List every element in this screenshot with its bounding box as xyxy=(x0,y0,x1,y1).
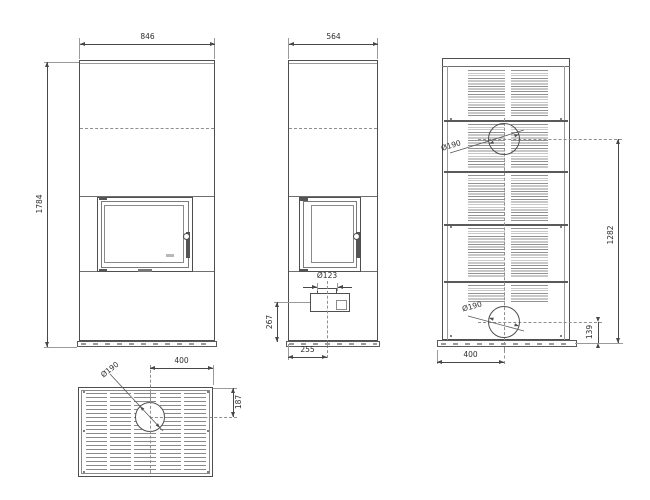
dim-arrow xyxy=(231,412,235,417)
dim-arrow xyxy=(275,337,279,342)
dim-line-front-width xyxy=(80,44,215,45)
dim-inlet-height-label: 267 xyxy=(266,311,274,333)
top-vent-slat-column xyxy=(86,393,107,471)
dim-arrow xyxy=(312,285,317,289)
screw-dot xyxy=(450,118,452,120)
vent-slat-column xyxy=(511,228,548,278)
brand-mark xyxy=(166,254,174,257)
dim-arrow xyxy=(338,285,343,289)
rear-panel-divider xyxy=(444,224,568,226)
screw-dot xyxy=(450,226,452,228)
vent-slat-column xyxy=(511,175,548,221)
front-top-inner-line xyxy=(80,63,214,64)
dim-arrow xyxy=(289,42,294,46)
rear-side-rail xyxy=(447,66,448,340)
dim-extension-line xyxy=(317,283,318,291)
dim-flue-diameter-label: Ø123 xyxy=(310,272,344,280)
dim-arrow xyxy=(80,42,85,46)
rear-body-outline xyxy=(442,58,570,340)
rear-side-rail xyxy=(564,66,565,340)
top-vent-slat-column xyxy=(110,393,131,471)
screw-dot xyxy=(450,335,452,337)
dim-arrow xyxy=(596,317,600,322)
vent-slat-column xyxy=(511,285,548,303)
side-connection-subbox xyxy=(336,300,347,310)
dim-arrow xyxy=(616,338,620,343)
dim-arrow xyxy=(208,366,213,370)
dim-arrow xyxy=(437,360,442,364)
dim-arrow xyxy=(150,366,155,370)
dim-extension-line xyxy=(213,365,214,385)
dim-arrow xyxy=(210,42,215,46)
screw-dot xyxy=(83,430,85,432)
dim-line-inlet-height xyxy=(277,302,278,342)
dim-rear-outlet-offset-label: 400 xyxy=(437,351,504,359)
side-hinge-clip-bottom xyxy=(300,269,308,272)
screw-dot xyxy=(560,335,562,337)
dim-line-upper-outlet-height xyxy=(618,139,619,343)
rear-panel-divider xyxy=(444,171,568,173)
dim-extension-line xyxy=(504,350,505,364)
rear-panel-divider xyxy=(444,120,568,122)
dim-extension-line xyxy=(44,347,77,348)
side-panel-joint-dashed xyxy=(289,128,377,129)
top-vent-slat-column xyxy=(160,393,181,471)
vent-slat-column xyxy=(511,70,548,117)
rear-lower-outlet-circle xyxy=(488,306,520,338)
rear-upper-outlet-circle xyxy=(488,123,520,155)
dim-line-front-height xyxy=(47,62,48,347)
front-base-plinth xyxy=(77,341,217,347)
top-center-line xyxy=(150,391,151,473)
dim-line-side-depth xyxy=(289,44,378,45)
dim-side-depth-label: 564 xyxy=(289,33,378,41)
dim-inlet-offset-label: 255 xyxy=(288,346,327,354)
rear-top-bar-line xyxy=(442,66,570,67)
screw-dot xyxy=(207,430,209,432)
side-top-inner-line xyxy=(289,63,377,64)
side-door-glass xyxy=(311,205,354,263)
vent-slat-column xyxy=(468,175,505,221)
dim-arrow xyxy=(596,343,600,348)
screw-dot xyxy=(560,226,562,228)
dim-arrow xyxy=(275,302,279,307)
dim-line-top-outlet-offset xyxy=(150,368,213,369)
screw-dot xyxy=(560,118,562,120)
vent-slat-column xyxy=(468,228,505,278)
screw-dot xyxy=(83,391,85,393)
front-hinge-clip-top xyxy=(99,197,107,200)
screw-dot xyxy=(207,391,209,393)
top-outlet-axis-up xyxy=(150,365,151,402)
dim-top-outlet-offset-label: 400 xyxy=(150,357,213,365)
dim-arrow xyxy=(45,62,49,67)
dim-lower-outlet-height-label: 139 xyxy=(586,322,594,342)
dim-arrow xyxy=(499,360,504,364)
dim-top-outlet-label: Ø190 xyxy=(100,361,121,380)
dim-top-outlet-depth-label: 187 xyxy=(235,392,243,412)
technical-drawing-canvas: 846 1784 564 Ø123 267 255 xyxy=(0,0,650,500)
side-door-handle-knob xyxy=(353,233,360,240)
dim-arrow xyxy=(322,355,327,359)
dim-upper-outlet-height-label: 1282 xyxy=(607,222,615,248)
dim-extension-line xyxy=(44,62,79,63)
front-hinge-clip-bottom xyxy=(99,269,107,272)
front-panel-joint-dashed xyxy=(80,128,214,129)
rear-base-plinth xyxy=(437,340,577,347)
screw-dot xyxy=(83,471,85,473)
top-vent-slat-column xyxy=(184,393,206,471)
dim-arrow xyxy=(45,342,49,347)
dim-extension-line xyxy=(274,302,310,303)
top-outlet-axis xyxy=(150,417,237,418)
dim-line-rear-outlet-offset xyxy=(437,362,504,363)
rear-panel-divider xyxy=(444,281,568,283)
dim-front-height-label: 1784 xyxy=(36,191,44,217)
side-hinge-clip-top xyxy=(300,198,308,201)
front-door-handle-knob xyxy=(183,233,190,240)
front-door-latch xyxy=(138,269,152,272)
dim-front-width-label: 846 xyxy=(80,33,215,41)
vent-slat-column xyxy=(468,70,505,117)
dim-arrow xyxy=(288,355,293,359)
dim-arrow xyxy=(373,42,378,46)
dim-arrow xyxy=(616,139,620,144)
screw-dot xyxy=(207,471,209,473)
dim-line-lower-outlet-height xyxy=(598,322,599,343)
